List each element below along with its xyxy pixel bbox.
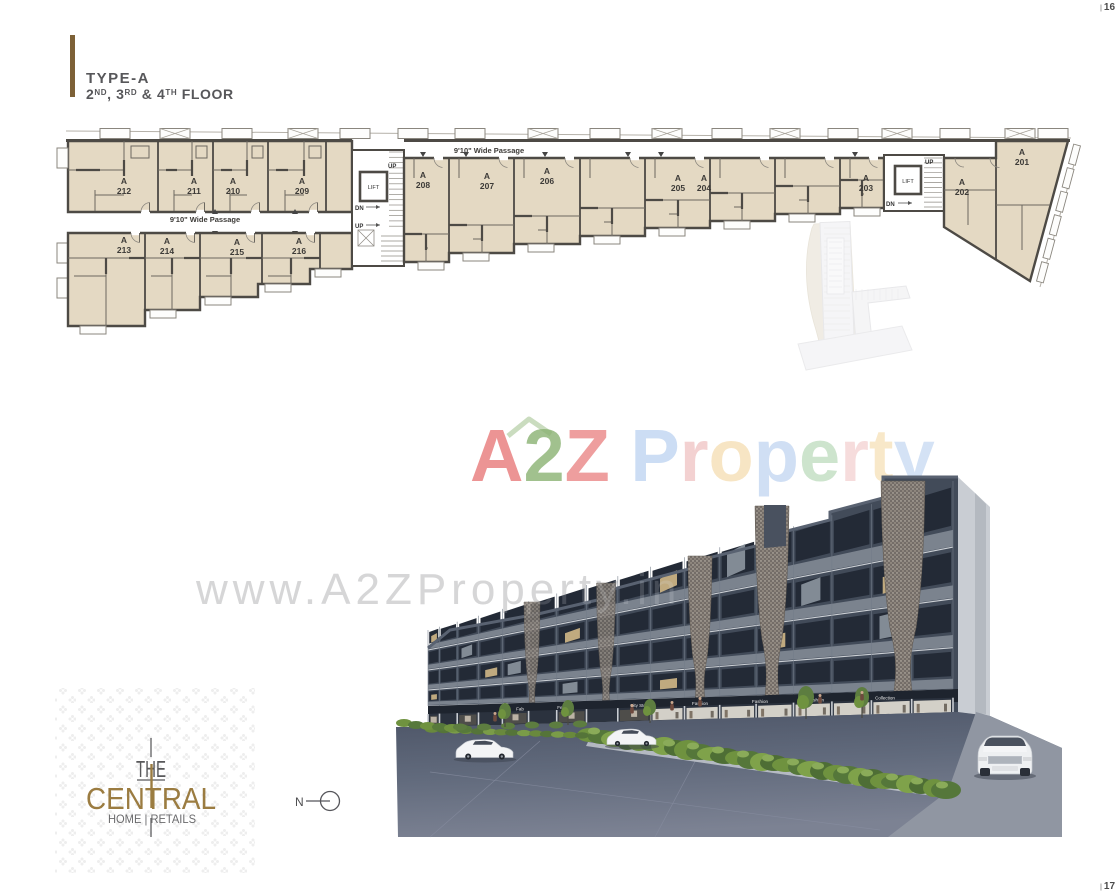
svg-text:UP: UP bbox=[925, 160, 933, 166]
svg-text:213: 213 bbox=[117, 245, 131, 255]
svg-text:A: A bbox=[191, 176, 197, 186]
svg-text:212: 212 bbox=[117, 186, 131, 196]
svg-text:Fab: Fab bbox=[516, 707, 524, 712]
svg-text:9'10" Wide Passage: 9'10" Wide Passage bbox=[170, 215, 240, 224]
svg-text:206: 206 bbox=[540, 176, 554, 186]
svg-text:A: A bbox=[484, 171, 490, 181]
svg-text:215: 215 bbox=[230, 247, 244, 257]
svg-text:A: A bbox=[701, 173, 707, 183]
svg-text:www.A2ZProperty.in: www.A2ZProperty.in bbox=[195, 565, 681, 614]
svg-text:205: 205 bbox=[671, 183, 685, 193]
svg-text:202: 202 bbox=[955, 187, 969, 197]
svg-text:DN: DN bbox=[355, 206, 364, 212]
svg-text:211: 211 bbox=[187, 186, 201, 196]
svg-text:A: A bbox=[121, 176, 127, 186]
svg-text:LIFT: LIFT bbox=[902, 179, 914, 185]
svg-text:210: 210 bbox=[226, 186, 240, 196]
svg-text:216: 216 bbox=[292, 246, 306, 256]
svg-text:LIFT: LIFT bbox=[368, 185, 380, 191]
svg-text:DN: DN bbox=[886, 202, 895, 208]
svg-text:A: A bbox=[164, 236, 170, 246]
svg-text:UP: UP bbox=[388, 164, 396, 170]
svg-text:UP: UP bbox=[355, 224, 363, 230]
svg-text:A: A bbox=[959, 177, 965, 187]
svg-text:A: A bbox=[299, 176, 305, 186]
svg-text:214: 214 bbox=[160, 246, 174, 256]
svg-text:A: A bbox=[230, 176, 236, 186]
svg-text:A: A bbox=[1019, 147, 1025, 157]
svg-text:A: A bbox=[863, 173, 869, 183]
svg-text:A: A bbox=[420, 170, 426, 180]
svg-text:A: A bbox=[121, 235, 127, 245]
svg-text:A: A bbox=[234, 237, 240, 247]
svg-text:208: 208 bbox=[416, 180, 430, 190]
svg-text:A: A bbox=[544, 166, 550, 176]
svg-text:A: A bbox=[296, 236, 302, 246]
svg-text:204: 204 bbox=[697, 183, 711, 193]
svg-text:Fashion: Fashion bbox=[752, 699, 769, 704]
svg-text:N: N bbox=[295, 795, 304, 809]
svg-text:HOME | RETAILS: HOME | RETAILS bbox=[108, 812, 196, 826]
svg-text:207: 207 bbox=[480, 181, 494, 191]
svg-text:201: 201 bbox=[1015, 157, 1029, 167]
svg-text:209: 209 bbox=[295, 186, 309, 196]
svg-text:203: 203 bbox=[859, 183, 873, 193]
svg-text:A: A bbox=[675, 173, 681, 183]
